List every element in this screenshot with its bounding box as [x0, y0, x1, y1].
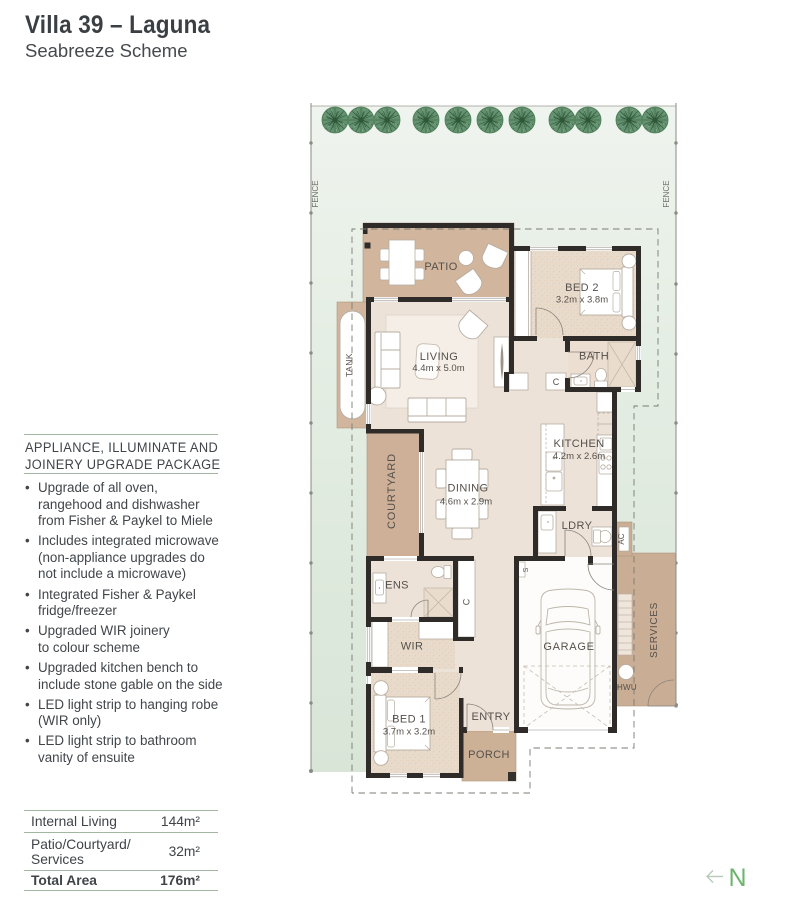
- svg-text:4.4m x 5.0m: 4.4m x 5.0m: [412, 363, 464, 374]
- svg-text:ENTRY: ENTRY: [471, 711, 510, 723]
- svg-text:COURTYARD: COURTYARD: [386, 453, 398, 529]
- svg-text:4.6m x 2.9m: 4.6m x 2.9m: [440, 497, 492, 508]
- svg-text:FENCE: FENCE: [311, 180, 320, 207]
- svg-text:C: C: [462, 598, 472, 605]
- svg-text:TANK: TANK: [344, 353, 354, 377]
- svg-text:4.2m x 2.6m: 4.2m x 2.6m: [553, 451, 605, 462]
- svg-text:GARAGE: GARAGE: [543, 641, 594, 653]
- svg-text:ENS: ENS: [385, 580, 409, 592]
- svg-text:KITCHEN: KITCHEN: [553, 438, 604, 450]
- svg-text:C: C: [553, 377, 560, 387]
- svg-text:SERVICES: SERVICES: [649, 602, 660, 658]
- svg-text:3.2m x 3.8m: 3.2m x 3.8m: [556, 295, 608, 306]
- svg-text:BED 1: BED 1: [392, 714, 426, 726]
- svg-text:AC: AC: [617, 533, 626, 544]
- svg-text:DINING: DINING: [448, 483, 489, 495]
- svg-text:LIVING: LIVING: [420, 351, 458, 363]
- svg-text:LDRY: LDRY: [562, 520, 593, 532]
- svg-text:WIR: WIR: [401, 641, 424, 653]
- svg-text:N: N: [729, 864, 747, 892]
- svg-text:PATIO: PATIO: [424, 261, 457, 273]
- svg-text:3.7m x 3.2m: 3.7m x 3.2m: [383, 727, 435, 738]
- svg-text:BED 2: BED 2: [565, 282, 599, 294]
- svg-text:FENCE: FENCE: [662, 180, 671, 207]
- svg-text:BATH: BATH: [579, 351, 609, 363]
- svg-text:S: S: [523, 567, 530, 572]
- svg-text:PORCH: PORCH: [468, 749, 510, 761]
